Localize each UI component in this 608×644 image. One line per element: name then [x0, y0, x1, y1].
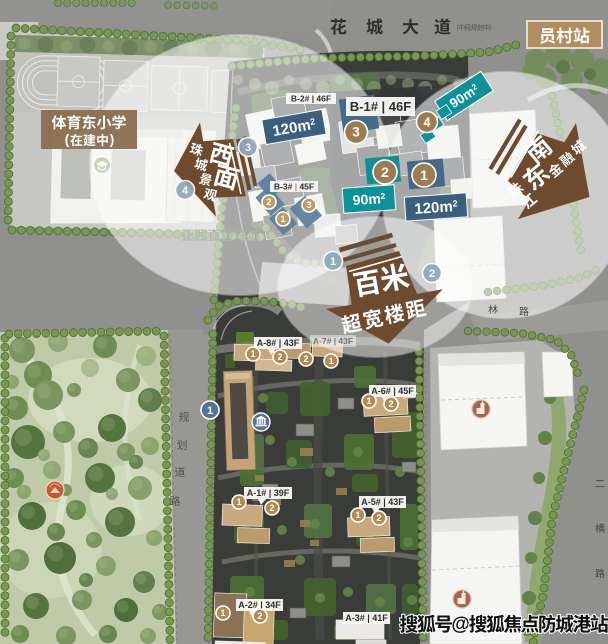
svg-text:1: 1: [236, 497, 241, 507]
svg-text:A-1# | 39F: A-1# | 39F: [247, 488, 290, 498]
svg-text:A-3# | 41F: A-3# | 41F: [345, 613, 388, 623]
svg-text:2: 2: [381, 164, 389, 180]
svg-text:1: 1: [420, 167, 428, 183]
svg-text:(: (: [65, 132, 70, 147]
svg-text:2: 2: [269, 503, 274, 513]
svg-text:A-7# | 43F: A-7# | 43F: [313, 336, 353, 346]
svg-text:1: 1: [355, 510, 360, 520]
svg-text:1: 1: [330, 256, 336, 268]
svg-text:1: 1: [328, 356, 333, 366]
svg-text:120m2: 120m2: [414, 198, 458, 218]
svg-text:B-2# | 46F: B-2# | 46F: [291, 94, 331, 104]
svg-text:3: 3: [306, 200, 311, 210]
svg-text:@: @: [451, 614, 470, 635]
svg-text:2: 2: [266, 197, 271, 207]
svg-text:4: 4: [182, 185, 189, 197]
svg-text:3: 3: [352, 125, 360, 140]
svg-text:1: 1: [207, 405, 213, 417]
svg-text:1: 1: [220, 608, 225, 618]
svg-text:2: 2: [429, 268, 435, 280]
svg-text:90m2: 90m2: [352, 190, 386, 208]
svg-text:): ): [110, 132, 115, 147]
svg-text:A-5# | 43F: A-5# | 43F: [361, 497, 404, 507]
svg-text:3: 3: [245, 142, 251, 154]
svg-text:1: 1: [250, 349, 255, 359]
svg-text:2: 2: [376, 513, 381, 523]
svg-text:2: 2: [257, 611, 262, 621]
svg-text:2: 2: [388, 399, 393, 409]
svg-text:B-1# | 46F: B-1# | 46F: [350, 99, 411, 114]
svg-text:4: 4: [424, 115, 431, 129]
svg-text:2: 2: [277, 352, 282, 362]
svg-text:A-6# | 45F: A-6# | 45F: [371, 386, 414, 396]
svg-text:1: 1: [366, 396, 371, 406]
svg-text:2: 2: [303, 354, 308, 364]
svg-text:1: 1: [280, 214, 285, 224]
svg-text:B-3# | 45F: B-3# | 45F: [274, 182, 314, 192]
svg-text:A-8# | 43F: A-8# | 43F: [257, 338, 300, 348]
